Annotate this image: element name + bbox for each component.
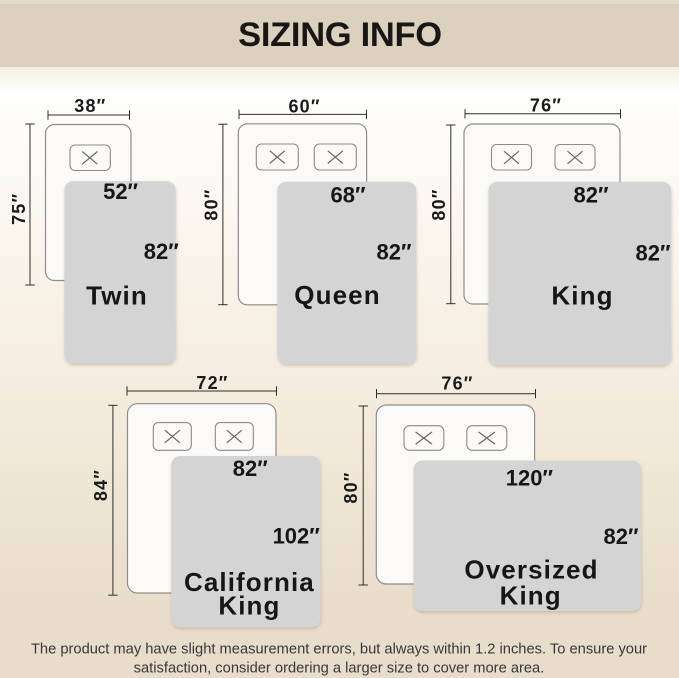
svg-text:Twin: Twin [86, 280, 148, 310]
svg-text:82″: 82″ [603, 524, 638, 549]
svg-text:52″: 52″ [103, 179, 138, 204]
svg-text:80″: 80″ [201, 188, 221, 220]
svg-text:72″: 72″ [196, 373, 228, 393]
svg-text:76″: 76″ [441, 374, 473, 394]
svg-text:76″: 76″ [530, 96, 562, 116]
svg-text:Queen: Queen [294, 280, 380, 310]
svg-text:82″: 82″ [573, 183, 608, 208]
svg-text:82″: 82″ [144, 239, 179, 264]
svg-text:60″: 60″ [288, 96, 320, 116]
svg-text:75″: 75″ [9, 193, 29, 225]
svg-text:102″: 102″ [273, 524, 321, 549]
svg-text:80″: 80″ [429, 188, 449, 220]
svg-text:38″: 38″ [74, 96, 106, 116]
svg-text:80″: 80″ [341, 471, 361, 503]
svg-text:82″: 82″ [233, 456, 268, 481]
svg-text:68″: 68″ [330, 183, 365, 208]
svg-text:SIZING INFO: SIZING INFO [238, 16, 442, 54]
svg-text:120″: 120″ [506, 465, 554, 490]
svg-text:satisfaction, consider orderin: satisfaction, consider ordering a larger… [134, 661, 545, 677]
svg-text:King: King [551, 280, 613, 310]
svg-text:84″: 84″ [91, 469, 111, 501]
svg-text:82″: 82″ [635, 240, 670, 265]
svg-text:King: King [500, 581, 562, 611]
svg-text:The product may have slight me: The product may have slight measurement … [31, 642, 647, 658]
svg-text:King: King [218, 591, 280, 621]
svg-text:82″: 82″ [376, 240, 411, 265]
